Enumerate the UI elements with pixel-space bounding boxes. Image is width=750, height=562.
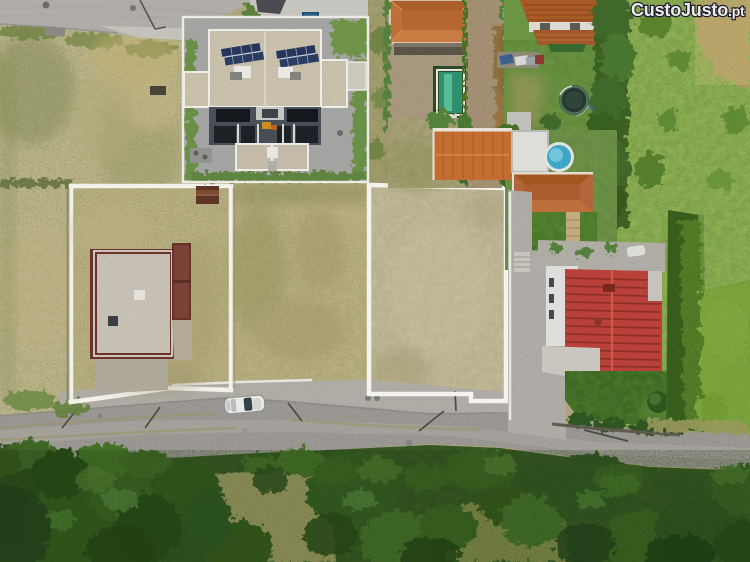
svg-text:CustoJusto.pt: CustoJusto.pt xyxy=(631,0,745,20)
